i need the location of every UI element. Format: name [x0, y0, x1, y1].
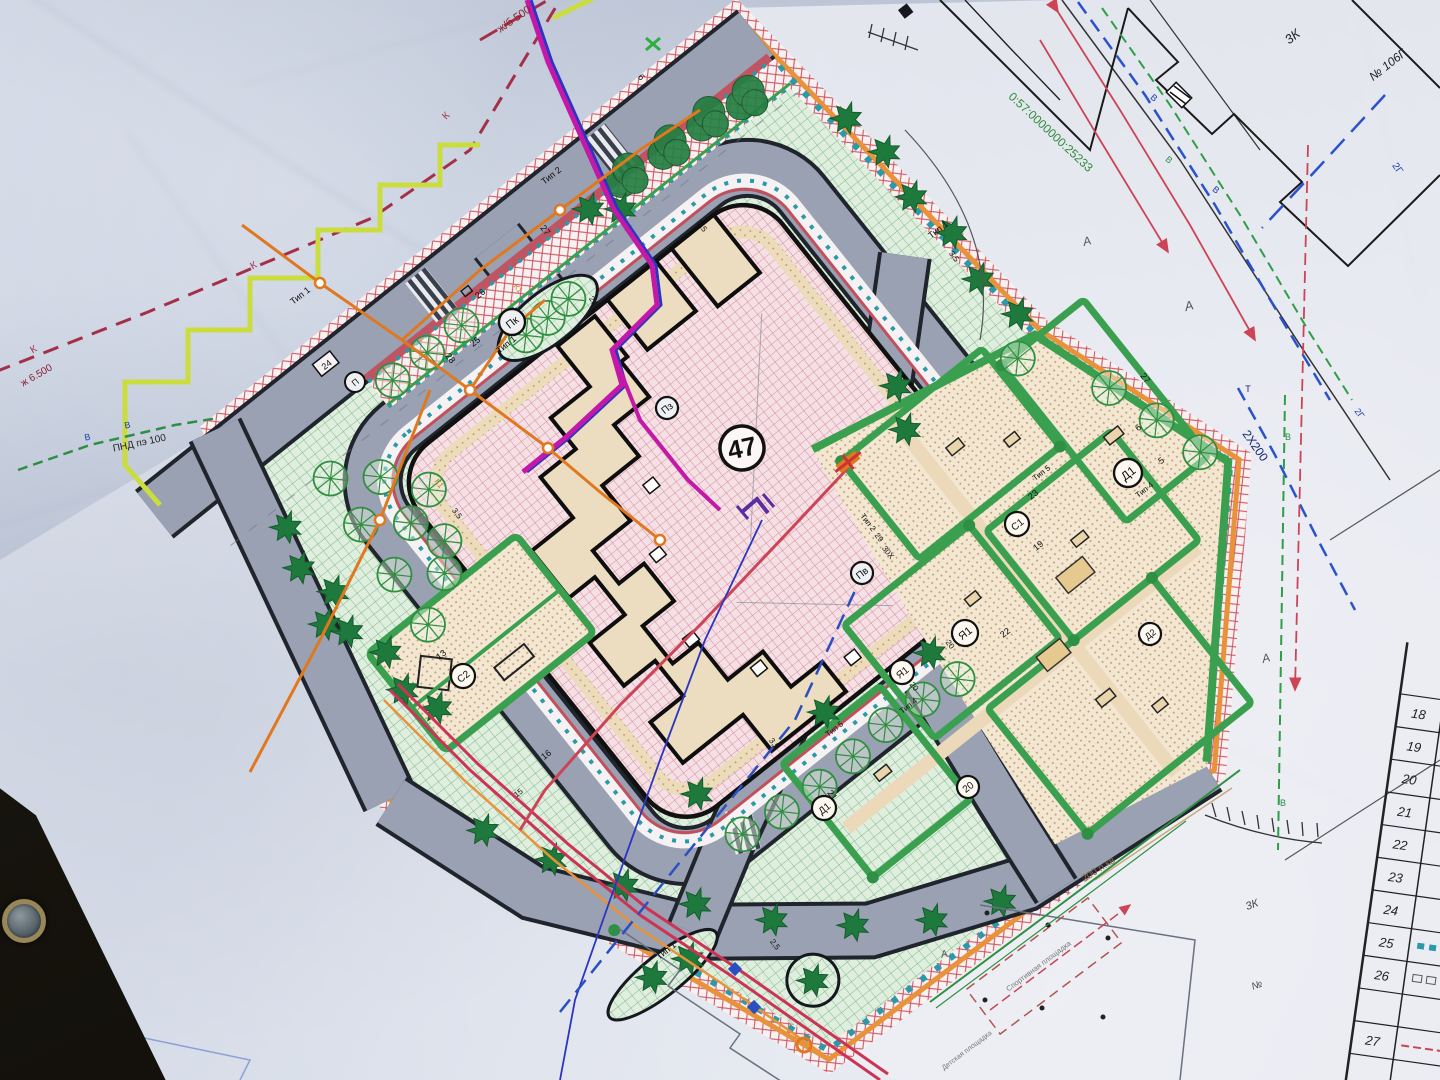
label-v-e: В — [1285, 432, 1291, 442]
legend-row-18: 18 — [1410, 706, 1427, 723]
label-pnd: ПНД пэ 100 — [112, 432, 167, 454]
label-k-a: К — [28, 344, 39, 357]
site-plan-photo: 18 19 20 21 22 23 24 25 26 27 — [0, 0, 1440, 1080]
legend-row-24: 24 — [1382, 902, 1399, 919]
legend-row-21: 21 — [1396, 804, 1413, 821]
label-zhb500: ж/б 500 — [495, 4, 533, 36]
label-t: Т — [1245, 384, 1251, 394]
legend-row-25: 25 — [1377, 934, 1395, 951]
svg-text:47: 47 — [725, 430, 760, 465]
label-tip1-a: Тип 1 — [288, 285, 312, 307]
legend-row-27: 27 — [1363, 1032, 1381, 1049]
legend-row-23: 23 — [1386, 869, 1404, 886]
label-k-c: К — [440, 110, 452, 122]
legend-row-22: 22 — [1391, 836, 1409, 853]
legend-row-19: 19 — [1406, 738, 1422, 755]
label-v-b: В — [123, 420, 131, 431]
fabric-button — [2, 899, 46, 943]
label-v-a: В — [83, 432, 91, 443]
plan-drawing: 18 19 20 21 22 23 24 25 26 27 — [0, 0, 1440, 1080]
label-v-f: В — [1280, 798, 1286, 808]
label-zh6500: ж 6.500 — [19, 362, 55, 389]
green-cross-mark — [646, 38, 660, 50]
legend-row-26: 26 — [1373, 967, 1391, 984]
legend-row-20: 20 — [1400, 771, 1418, 788]
